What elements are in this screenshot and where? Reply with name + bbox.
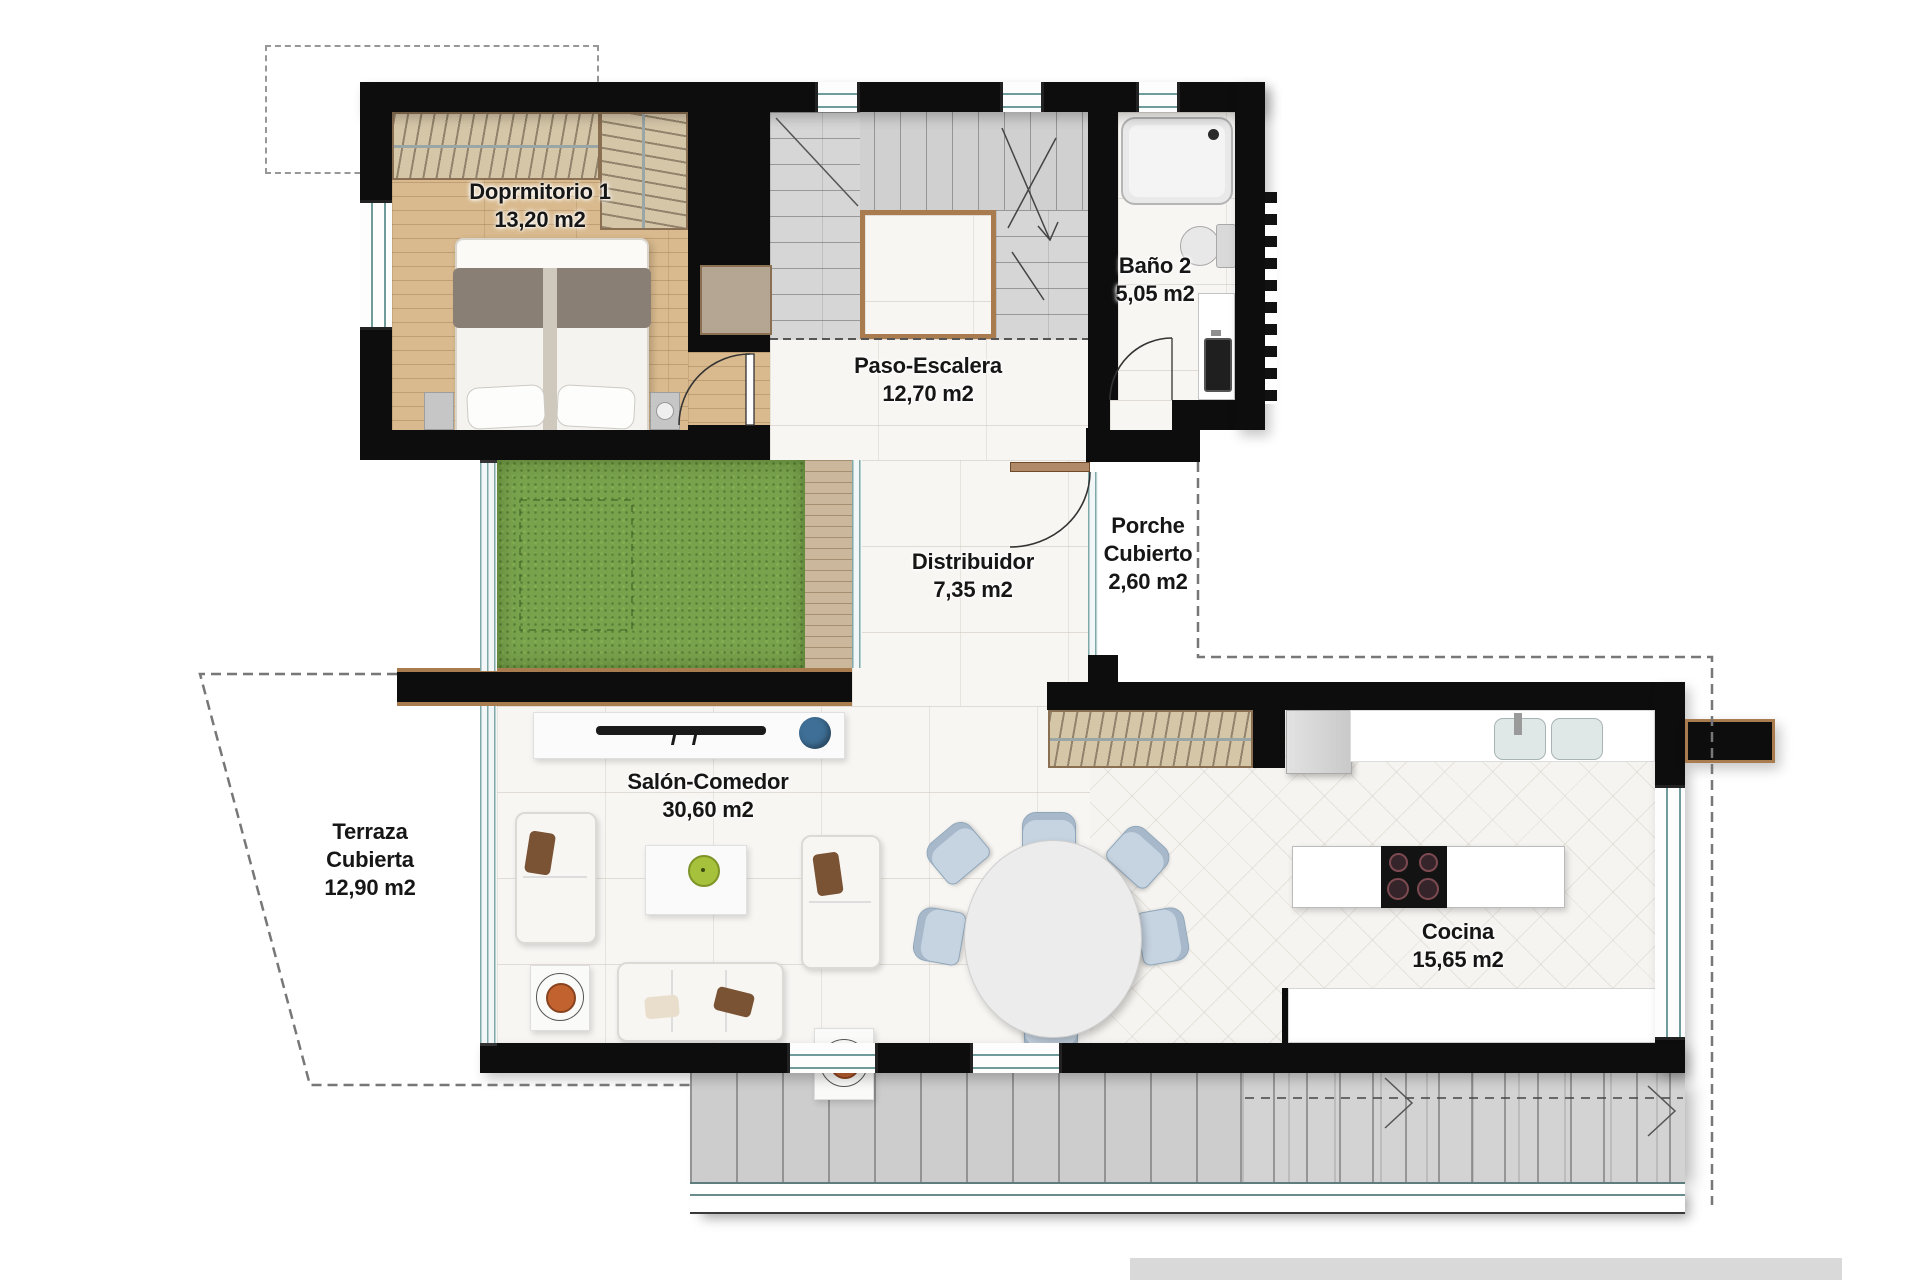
decor-bowl-green xyxy=(688,855,720,887)
cooktop xyxy=(1381,846,1447,908)
bath-faucet xyxy=(1211,330,1221,336)
kitchen-faucet xyxy=(1514,713,1522,735)
coffee-table xyxy=(645,845,747,915)
wall-niche xyxy=(700,265,772,335)
bathtub-drain xyxy=(1208,129,1219,140)
sofa-left-seam xyxy=(523,876,587,878)
wardrobe-kitchen-rail xyxy=(1050,738,1251,741)
wall-chimney-stub xyxy=(1685,719,1775,763)
wall-salon-top xyxy=(397,668,852,706)
wall-porch-top xyxy=(1086,428,1200,462)
kitchen-counter xyxy=(1350,710,1655,762)
dining-chair-right xyxy=(1135,905,1192,967)
bathtub xyxy=(1121,117,1233,205)
sliding-door-patio xyxy=(852,460,862,668)
label-dormitorio-name: Doprmitorio 1 xyxy=(469,178,611,206)
window-kitchen-right xyxy=(1655,785,1685,1040)
stairs-right-flight xyxy=(996,210,1088,339)
label-cocina-name: Cocina xyxy=(1412,918,1503,946)
label-distribuidor: Distribuidor 7,35 m2 xyxy=(912,548,1034,604)
label-bano-area: 5,05 m2 xyxy=(1115,280,1194,308)
label-cocina: Cocina 15,65 m2 xyxy=(1412,918,1503,974)
wall-bedroom-bottom xyxy=(360,430,770,460)
patio-deck-strip xyxy=(805,460,852,668)
label-paso-name: Paso-Escalera xyxy=(854,352,1002,380)
sofa-left xyxy=(515,812,597,944)
bed-sheet-fold xyxy=(457,240,647,268)
burner-4 xyxy=(1417,878,1439,900)
label-distribuidor-name: Distribuidor xyxy=(912,548,1034,576)
tv xyxy=(596,726,766,735)
armchair-left-cushion xyxy=(546,983,576,1013)
wall-kitchen-cabinet-stub xyxy=(1282,988,1288,1046)
label-distribuidor-area: 7,35 m2 xyxy=(912,576,1034,604)
kitchen-island xyxy=(1292,846,1565,908)
label-terraza-name1: Terraza xyxy=(324,818,415,846)
window-salon-bottom-right xyxy=(970,1043,1062,1073)
wall-bottom xyxy=(480,1043,1685,1073)
label-paso-escalera: Paso-Escalera 12,70 m2 xyxy=(854,352,1002,408)
window-bath-top-left xyxy=(1000,82,1044,112)
label-porche-cubierto: Porche Cubierto 2,60 m2 xyxy=(1104,512,1193,596)
sofa-right-seam xyxy=(809,901,871,903)
wall-bath-left xyxy=(1088,112,1118,400)
glass-wall-salon-left xyxy=(480,706,497,1046)
label-bano: Baño 2 5,05 m2 xyxy=(1115,252,1194,308)
armchair-left xyxy=(530,965,590,1031)
patio-grass xyxy=(497,460,805,668)
label-porche-name1: Porche xyxy=(1104,512,1193,540)
tv-stand xyxy=(671,735,697,745)
window-bedroom-left xyxy=(360,200,392,330)
window-salon-bottom-left xyxy=(787,1043,878,1073)
bed-pillow-right xyxy=(556,384,636,430)
wardrobe-bedroom-side xyxy=(600,112,688,230)
tv-cabinet xyxy=(533,712,845,759)
sofa-right xyxy=(801,835,881,969)
window-porch xyxy=(1088,472,1098,655)
label-porche-name2: Cubierto xyxy=(1104,540,1193,568)
sofa-bottom-cushion-cream xyxy=(644,995,680,1020)
wardrobe-side-rail xyxy=(642,114,645,228)
bed xyxy=(455,238,649,434)
label-salon-comedor: Salón-Comedor 30,60 m2 xyxy=(627,768,788,824)
label-terraza-cubierta: Terraza Cubierta 12,90 m2 xyxy=(324,818,415,902)
label-dormitorio: Doprmitorio 1 13,20 m2 xyxy=(469,178,611,234)
wall-kitchen-divider xyxy=(1253,710,1285,768)
bath-sink-basin xyxy=(1204,338,1232,392)
label-cocina-area: 15,65 m2 xyxy=(1412,946,1503,974)
fridge xyxy=(1286,710,1352,774)
nightstand-left xyxy=(424,392,454,430)
label-terraza-area: 12,90 m2 xyxy=(324,874,415,902)
label-terraza-name2: Cubierta xyxy=(324,846,415,874)
glass-wall-patio-left xyxy=(480,460,497,671)
bowl-green-center xyxy=(701,868,705,872)
lower-terrace-edge xyxy=(690,1182,1685,1214)
door-opening-bath xyxy=(1110,400,1172,430)
sofa-bottom-cushion-brown xyxy=(713,986,756,1018)
wardrobe-rail xyxy=(394,145,598,148)
nightstand-right xyxy=(650,392,680,430)
kitchen-lower-cabinets xyxy=(1288,988,1657,1043)
sofa-bottom xyxy=(617,962,784,1042)
wall-kitchen-porch-stub xyxy=(1088,655,1118,682)
label-porche-area: 2,60 m2 xyxy=(1104,568,1193,596)
door-leaf-porch xyxy=(1010,462,1090,472)
kitchen-sink-right xyxy=(1551,718,1603,760)
wardrobe-bedroom xyxy=(392,112,600,180)
lower-terrace-steps xyxy=(1240,1073,1685,1182)
burner-3 xyxy=(1387,878,1409,900)
dining-chair-left xyxy=(911,905,968,967)
sofa-right-cushion xyxy=(812,851,844,896)
sofa-left-cushion xyxy=(524,830,556,876)
wall-bath-right-hatch xyxy=(1265,192,1277,404)
wardrobe-kitchen xyxy=(1048,710,1253,768)
stairs-left-flight xyxy=(770,112,860,339)
window-bath-top-right xyxy=(1136,82,1180,112)
bath-vanity xyxy=(1198,293,1235,400)
nightstand-decor xyxy=(656,402,674,420)
label-paso-area: 12,70 m2 xyxy=(854,380,1002,408)
dining-table xyxy=(964,840,1142,1038)
footer-strip xyxy=(1130,1258,1842,1280)
toilet-tank xyxy=(1216,224,1236,268)
wall-kitchen-top xyxy=(1047,682,1685,710)
door-opening-bedroom xyxy=(688,352,770,425)
decor-bowl-blue xyxy=(799,717,831,749)
floor-plan: Doprmitorio 1 13,20 m2 Baño 2 5,05 m2 Pa… xyxy=(0,0,1920,1280)
label-salon-name: Salón-Comedor xyxy=(627,768,788,796)
wall-bath-right xyxy=(1235,82,1265,430)
bed-pillow-left xyxy=(466,384,546,430)
label-salon-area: 30,60 m2 xyxy=(627,796,788,824)
stairwell-void xyxy=(860,210,996,339)
window-stairs-top xyxy=(815,82,860,112)
wall-top xyxy=(360,82,1265,112)
label-bano-name: Baño 2 xyxy=(1115,252,1194,280)
burner-1 xyxy=(1389,853,1408,872)
label-dormitorio-area: 13,20 m2 xyxy=(469,206,611,234)
burner-2 xyxy=(1419,853,1438,872)
